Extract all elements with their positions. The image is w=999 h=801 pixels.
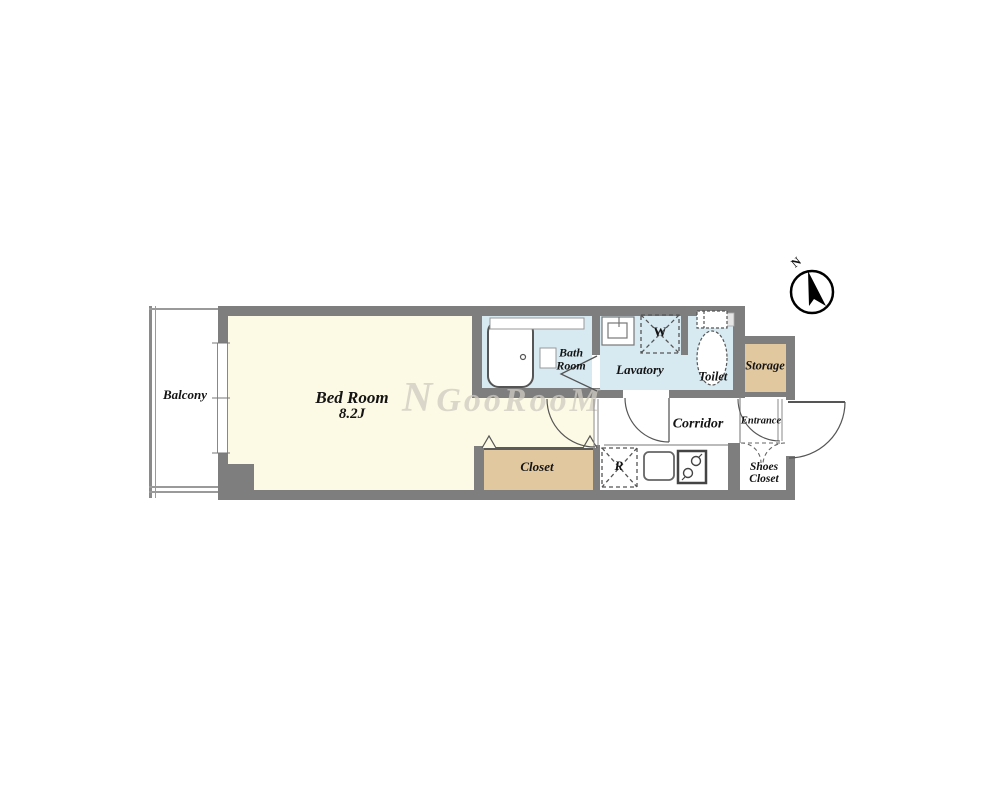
storage-label: Storage <box>745 359 785 372</box>
labels-layer: Balcony Bed Room 8.2J Bath Room Lavatory… <box>0 0 999 801</box>
shoes-closet-label: Shoes Closet <box>749 461 778 485</box>
shoes-closet-line1: Shoes <box>749 461 778 473</box>
toilet-label: Toilet <box>699 370 728 383</box>
bedroom-label: Bed Room 8.2J <box>315 389 388 423</box>
bedroom-size: 8.2J <box>315 407 388 423</box>
closet-label: Closet <box>520 460 553 474</box>
corridor-label: Corridor <box>673 418 724 433</box>
washing-machine-label: W <box>654 325 667 339</box>
floor-plan-page: NGooRooM <box>0 0 999 801</box>
bathroom-label: Bath Room <box>556 346 585 371</box>
bathroom-line2: Room <box>556 359 585 372</box>
refrigerator-label: R <box>615 459 624 473</box>
entrance-label: Entrance <box>741 415 781 426</box>
bedroom-name: Bed Room <box>315 389 388 407</box>
lavatory-label: Lavatory <box>616 363 664 377</box>
balcony-label: Balcony <box>163 388 207 402</box>
shoes-closet-line2: Closet <box>749 473 778 485</box>
bathroom-line1: Bath <box>556 346 585 359</box>
